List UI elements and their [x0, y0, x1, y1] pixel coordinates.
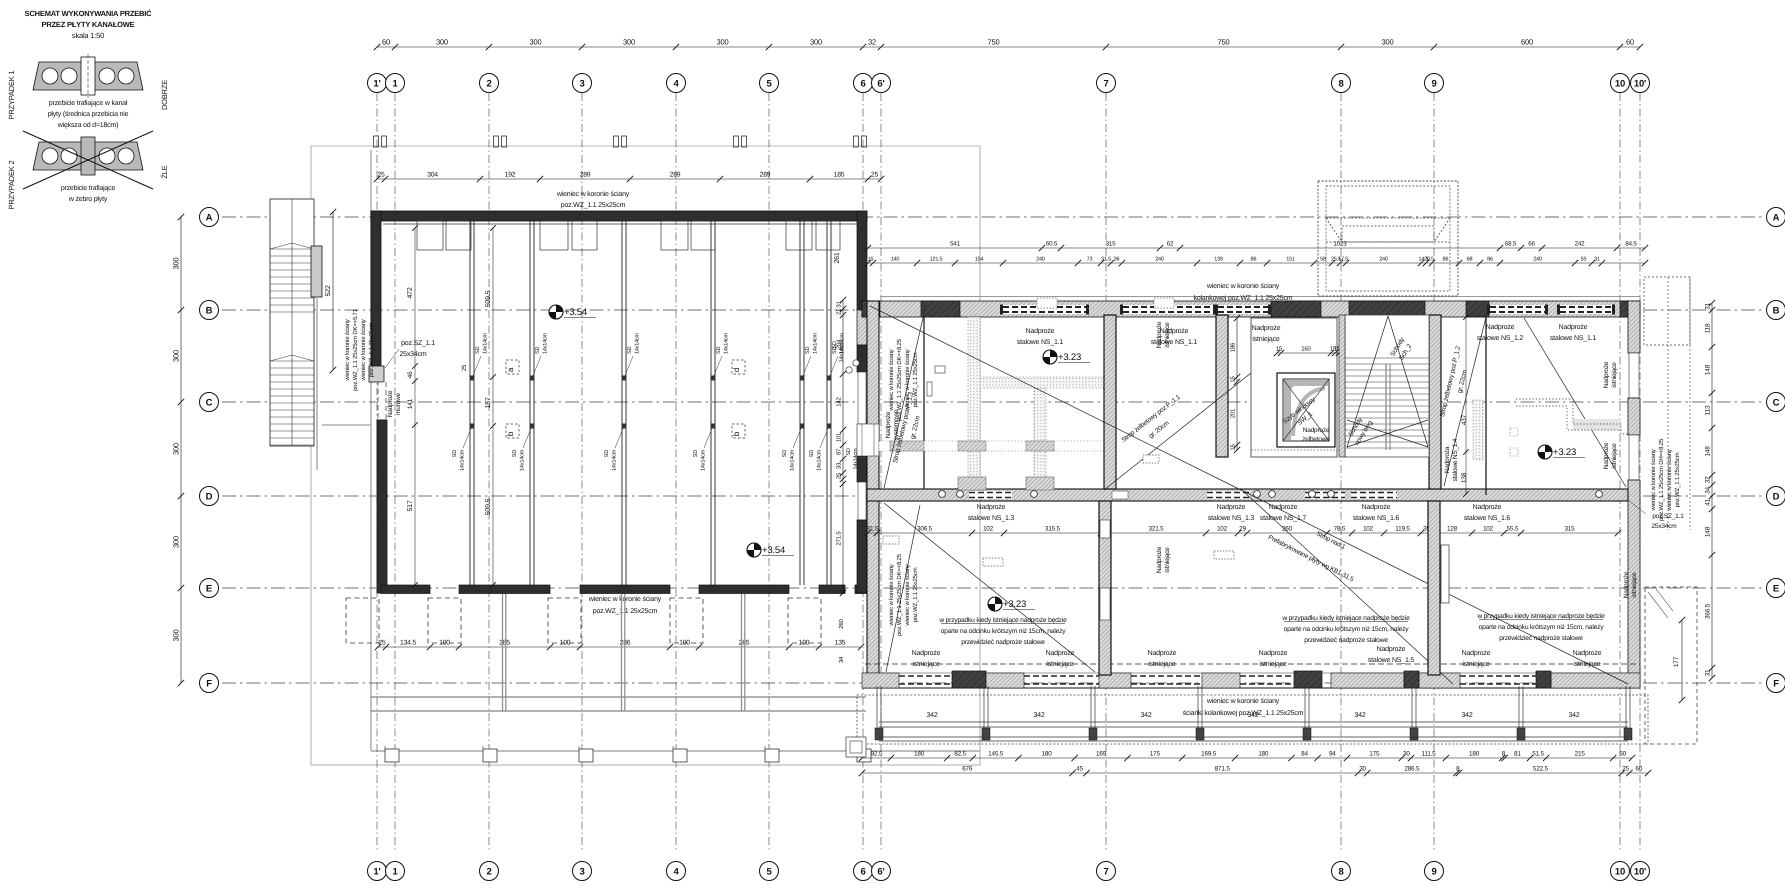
svg-text:+3.54: +3.54 — [762, 545, 785, 556]
svg-text:istniejące: istniejące — [1611, 443, 1618, 469]
svg-text:Nadproże: Nadproże — [1269, 503, 1298, 511]
svg-text:242: 242 — [1575, 241, 1585, 248]
svg-text:Nadproże: Nadproże — [1252, 324, 1281, 332]
svg-text:92.5: 92.5 — [871, 751, 883, 758]
svg-text:240: 240 — [1036, 257, 1045, 263]
svg-text:68.5: 68.5 — [1505, 241, 1517, 248]
svg-text:wieniec w koronie ściany: wieniec w koronie ściany — [1650, 449, 1657, 511]
svg-text:300: 300 — [530, 38, 542, 47]
svg-text:289: 289 — [670, 172, 681, 179]
svg-text:SD: SD — [604, 450, 610, 457]
svg-text:34: 34 — [1705, 487, 1712, 494]
svg-text:25: 25 — [871, 172, 879, 179]
svg-text:poz.WZ_1.1 25x25cm DH=+8.25: poz.WZ_1.1 25x25cm DH=+8.25 — [1658, 438, 1665, 521]
svg-text:84.5: 84.5 — [1625, 241, 1637, 248]
svg-text:139: 139 — [1214, 257, 1223, 263]
svg-text:PRZEZ PŁYTY KANAŁOWE: PRZEZ PŁYTY KANAŁOWE — [42, 20, 135, 29]
svg-text:157: 157 — [485, 397, 492, 408]
svg-text:SD: SD — [805, 347, 811, 354]
svg-text:7: 7 — [1103, 78, 1108, 89]
svg-text:14x14cm: 14x14cm — [813, 332, 819, 354]
svg-text:600: 600 — [1521, 38, 1533, 47]
svg-text:60.5: 60.5 — [1046, 241, 1058, 248]
svg-text:Nadproże: Nadproże — [1603, 361, 1610, 388]
svg-text:Nadproże: Nadproże — [1462, 649, 1491, 657]
svg-text:3: 3 — [579, 78, 584, 89]
svg-text:6': 6' — [877, 866, 884, 877]
svg-text:wieniec w koronie ściany: wieniec w koronie ściany — [888, 564, 895, 626]
svg-text:istniejące: istniejące — [1259, 660, 1286, 668]
svg-text:14x14cm: 14x14cm — [724, 332, 730, 354]
svg-text:517: 517 — [407, 500, 414, 511]
svg-text:przebicie trafiające: przebicie trafiające — [61, 184, 116, 192]
svg-text:522.5: 522.5 — [1533, 766, 1549, 773]
svg-text:stalowe NS_1.5: stalowe NS_1.5 — [1368, 656, 1415, 664]
svg-text:148: 148 — [1705, 364, 1712, 375]
svg-text:289: 289 — [580, 172, 591, 179]
svg-text:w przypadku kiedy istniejące n: w przypadku kiedy istniejące nadproże bę… — [1281, 615, 1410, 622]
svg-text:14x14cm: 14x14cm — [460, 449, 466, 471]
svg-text:9: 9 — [1431, 866, 1436, 877]
svg-text:180: 180 — [1469, 751, 1480, 758]
svg-text:25: 25 — [461, 364, 468, 371]
svg-text:istniejące: istniejące — [912, 660, 939, 668]
svg-text:111.5: 111.5 — [1421, 751, 1436, 758]
svg-text:300: 300 — [1382, 38, 1394, 47]
svg-text:750: 750 — [988, 38, 1000, 47]
svg-text:F: F — [206, 678, 212, 689]
svg-text:istniejące: istniejące — [1164, 547, 1171, 573]
svg-text:240: 240 — [1379, 257, 1388, 263]
svg-text:Nadproże: Nadproże — [1603, 442, 1610, 469]
svg-text:C: C — [1773, 397, 1780, 408]
svg-text:PRZYPADEK 1: PRZYPADEK 1 — [7, 71, 16, 120]
svg-text:SD: SD — [452, 450, 458, 457]
svg-text:25x34cm: 25x34cm — [399, 351, 426, 358]
svg-text:E: E — [206, 583, 212, 594]
svg-text:Nadproże: Nadproże — [977, 503, 1006, 511]
svg-text:86: 86 — [1251, 257, 1257, 263]
svg-text:ŹLE: ŹLE — [160, 165, 169, 178]
svg-text:stalowe NS_1.1: stalowe NS_1.1 — [1017, 338, 1064, 346]
svg-text:177: 177 — [1673, 656, 1680, 667]
svg-text:istniejące: istniejące — [1573, 660, 1600, 668]
svg-text:poz.WZ_1.1 25x25cm DK=+8.25: poz.WZ_1.1 25x25cm DK=+8.25 — [896, 553, 903, 636]
svg-text:871.5: 871.5 — [1215, 766, 1231, 773]
svg-text:10: 10 — [1615, 78, 1625, 89]
svg-text:SD: SD — [716, 347, 722, 354]
svg-text:240: 240 — [1533, 257, 1542, 263]
svg-text:215: 215 — [1575, 751, 1586, 758]
svg-text:315: 315 — [1564, 526, 1575, 533]
svg-text:żelbetowe: żelbetowe — [1302, 436, 1330, 443]
svg-text:wieniec w koronie ściany: wieniec w koronie ściany — [1206, 697, 1280, 705]
svg-text:6': 6' — [877, 78, 884, 89]
svg-text:100: 100 — [560, 640, 571, 647]
svg-text:30: 30 — [1403, 751, 1410, 758]
svg-text:201: 201 — [1230, 408, 1237, 418]
svg-text:34: 34 — [838, 656, 845, 663]
svg-text:51.5: 51.5 — [1532, 751, 1544, 758]
svg-text:przebicie trafiające w kanał: przebicie trafiające w kanał — [49, 99, 128, 107]
svg-text:100: 100 — [439, 640, 450, 647]
svg-text:Nadproże: Nadproże — [1046, 649, 1075, 657]
svg-text:Nadproże: Nadproże — [387, 390, 394, 417]
svg-text:14x14cm: 14x14cm — [543, 332, 549, 354]
svg-text:78.5: 78.5 — [1334, 526, 1346, 533]
svg-text:14x14cm: 14x14cm — [612, 449, 618, 471]
svg-text:Nadproże: Nadproże — [1486, 323, 1515, 331]
svg-text:SD: SD — [627, 347, 633, 354]
svg-text:240: 240 — [1155, 257, 1164, 263]
svg-text:SD: SD — [832, 341, 838, 348]
svg-text:Nadproża: Nadproża — [1444, 446, 1451, 473]
svg-text:66: 66 — [1528, 241, 1535, 248]
svg-text:60: 60 — [1626, 38, 1634, 47]
svg-text:A: A — [1773, 212, 1780, 223]
svg-text:oparte na odcinku krótszym niż: oparte na odcinku krótszym niż 15cm, nal… — [1284, 626, 1410, 633]
svg-text:poz.WZ_1.1 25x25cm: poz.WZ_1.1 25x25cm — [561, 202, 626, 209]
svg-text:45: 45 — [1076, 766, 1083, 773]
svg-text:261: 261 — [834, 252, 841, 263]
svg-text:B: B — [1773, 305, 1780, 316]
svg-text:SD: SD — [782, 450, 788, 457]
svg-text:306.5: 306.5 — [917, 526, 933, 533]
svg-text:stalowe NS_1.6: stalowe NS_1.6 — [1353, 514, 1400, 522]
svg-text:Nadproże: Nadproże — [1148, 649, 1177, 657]
svg-text:522: 522 — [325, 285, 332, 296]
svg-text:180: 180 — [1258, 751, 1269, 758]
svg-text:stalowe NS_1.7: stalowe NS_1.7 — [1260, 514, 1307, 522]
svg-text:E: E — [1773, 583, 1779, 594]
svg-text:Nadproże: Nadproże — [1573, 649, 1602, 657]
svg-text:260: 260 — [1282, 526, 1293, 533]
svg-text:Nadproże: Nadproże — [1303, 427, 1330, 434]
svg-text:300: 300 — [172, 536, 181, 548]
svg-text:31.5: 31.5 — [1101, 257, 1111, 263]
svg-text:SD: SD — [535, 347, 541, 354]
svg-text:342: 342 — [1140, 712, 1151, 719]
svg-text:541: 541 — [950, 241, 960, 248]
svg-text:20.5: 20.5 — [1424, 257, 1434, 263]
svg-text:148: 148 — [1705, 446, 1712, 457]
svg-text:315.5: 315.5 — [1045, 526, 1061, 533]
svg-text:A: A — [206, 212, 213, 223]
svg-text:B: B — [206, 305, 213, 316]
svg-text:poz.WZ_1.1 25x25cm DK=+8.25: poz.WZ_1.1 25x25cm DK=+8.25 — [896, 338, 903, 421]
svg-text:180: 180 — [1042, 751, 1053, 758]
svg-text:Nadproże: Nadproże — [1559, 323, 1588, 331]
svg-text:istniejące: istniejące — [1252, 335, 1279, 343]
svg-text:138: 138 — [1461, 472, 1468, 483]
svg-text:Nadproże: Nadproże — [1259, 649, 1288, 657]
svg-text:31: 31 — [1705, 303, 1712, 310]
svg-text:321.5: 321.5 — [1149, 526, 1165, 533]
svg-text:21: 21 — [836, 308, 843, 315]
svg-text:31: 31 — [836, 301, 843, 308]
svg-text:+3.23: +3.23 — [1553, 447, 1576, 458]
svg-text:84: 84 — [1301, 751, 1308, 758]
svg-text:C: C — [206, 397, 213, 408]
svg-text:304: 304 — [427, 172, 438, 179]
svg-text:Nadproże: Nadproże — [1026, 327, 1055, 335]
svg-text:przewidzieć nadproże stałowe: przewidzieć nadproże stałowe — [961, 639, 1045, 646]
svg-text:342: 342 — [1033, 712, 1044, 719]
svg-text:101: 101 — [836, 432, 843, 442]
svg-text:25x34cm: 25x34cm — [1652, 523, 1677, 530]
svg-text:113: 113 — [1705, 405, 1712, 415]
svg-text:15: 15 — [868, 257, 874, 263]
svg-text:58: 58 — [1320, 257, 1326, 263]
svg-text:192: 192 — [505, 172, 516, 179]
svg-text:Nadproże: Nadproże — [885, 411, 892, 438]
svg-text:9: 9 — [1431, 78, 1436, 89]
svg-text:135: 135 — [835, 640, 846, 647]
svg-text:Nadproże: Nadproże — [1473, 503, 1502, 511]
svg-text:14x14cm: 14x14cm — [839, 341, 845, 363]
svg-text:118: 118 — [1705, 323, 1712, 333]
svg-text:14x14cm: 14x14cm — [701, 449, 707, 471]
svg-text:Nadproże: Nadproże — [1217, 503, 1246, 511]
svg-text:86: 86 — [1487, 257, 1493, 263]
svg-text:41: 41 — [1705, 499, 1712, 506]
svg-text:w żebro płyty: w żebro płyty — [68, 195, 108, 203]
svg-text:315: 315 — [1106, 241, 1116, 248]
svg-text:55: 55 — [1581, 257, 1587, 263]
svg-text:wieniec w koronie ściany: wieniec w koronie ściany — [344, 319, 351, 381]
svg-text:stalowe NS_1.6: stalowe NS_1.6 — [1464, 514, 1511, 522]
svg-text:300: 300 — [623, 38, 635, 47]
svg-text:Nadproże: Nadproże — [1156, 546, 1163, 573]
svg-text:342: 342 — [1461, 712, 1472, 719]
svg-text:25: 25 — [836, 472, 843, 479]
svg-text:87: 87 — [836, 448, 843, 455]
svg-text:750: 750 — [1218, 38, 1230, 47]
svg-text:342: 342 — [926, 712, 937, 719]
svg-text:29: 29 — [1239, 526, 1246, 533]
svg-text:płyty (średnica przebicia nie: płyty (średnica przebicia nie — [48, 110, 129, 118]
svg-text:128: 128 — [1447, 526, 1458, 533]
svg-text:55.5: 55.5 — [1507, 526, 1519, 533]
svg-text:36: 36 — [1114, 257, 1120, 263]
svg-text:102: 102 — [983, 526, 994, 533]
svg-text:istniejące: istniejące — [1164, 322, 1171, 348]
svg-text:istniejące: istniejące — [1046, 660, 1073, 668]
svg-text:14x14cm: 14x14cm — [817, 449, 823, 471]
svg-text:stalowe NS_1.3: stalowe NS_1.3 — [1208, 514, 1255, 522]
svg-text:134.5: 134.5 — [400, 640, 416, 647]
svg-text:94: 94 — [1329, 751, 1336, 758]
svg-text:60: 60 — [382, 38, 390, 47]
svg-text:stalowe NS_1.1: stalowe NS_1.1 — [1550, 334, 1597, 342]
svg-text:285: 285 — [499, 640, 510, 647]
svg-text:1': 1' — [373, 866, 380, 877]
svg-text:186: 186 — [1230, 342, 1237, 352]
svg-text:stalowe NS_1.4: stalowe NS_1.4 — [1452, 438, 1459, 481]
svg-text:60: 60 — [1635, 766, 1642, 773]
svg-text:25: 25 — [1622, 766, 1629, 773]
svg-text:poz.SZ_1.1: poz.SZ_1.1 — [401, 340, 435, 347]
svg-text:509.5: 509.5 — [485, 290, 492, 307]
svg-text:300: 300 — [172, 258, 181, 270]
svg-text:murowe: murowe — [395, 392, 402, 415]
svg-text:31.5: 31.5 — [867, 526, 879, 533]
svg-text:1023: 1023 — [1334, 241, 1348, 248]
svg-text:289: 289 — [760, 172, 771, 179]
svg-text:PRZYPADEK 2: PRZYPADEK 2 — [7, 161, 16, 210]
svg-text:stalowe NS_1.2: stalowe NS_1.2 — [1477, 334, 1524, 342]
svg-text:Nadproże: Nadproże — [912, 649, 941, 657]
svg-text:6: 6 — [860, 866, 865, 877]
svg-text:271.5: 271.5 — [836, 531, 843, 546]
svg-text:154: 154 — [975, 257, 984, 263]
svg-text:300: 300 — [172, 630, 181, 642]
svg-text:15: 15 — [1230, 376, 1237, 383]
svg-text:169.5: 169.5 — [1201, 751, 1217, 758]
svg-text:25: 25 — [377, 172, 385, 179]
svg-text:102: 102 — [1217, 526, 1228, 533]
svg-text:300: 300 — [436, 38, 448, 47]
svg-text:68: 68 — [1467, 257, 1473, 263]
svg-text:121.5: 121.5 — [930, 257, 943, 263]
svg-text:151: 151 — [1286, 257, 1295, 263]
svg-text:86: 86 — [1443, 257, 1449, 263]
svg-text:6: 6 — [860, 78, 865, 89]
svg-text:100: 100 — [679, 640, 690, 647]
svg-text:180: 180 — [914, 751, 925, 758]
svg-text:148: 148 — [1705, 526, 1712, 537]
svg-text:przewidzieć nadproże stałowe: przewidzieć nadproże stałowe — [1499, 635, 1583, 642]
svg-text:przewidzieć nadproże stałowe: przewidzieć nadproże stałowe — [1304, 637, 1388, 644]
svg-text:D: D — [1773, 491, 1780, 502]
svg-text:342: 342 — [1568, 712, 1579, 719]
svg-text:1': 1' — [373, 78, 380, 89]
svg-text:30: 30 — [1359, 766, 1366, 773]
svg-text:472: 472 — [407, 287, 414, 298]
svg-text:46: 46 — [407, 371, 414, 378]
svg-text:Nadproże: Nadproże — [1623, 571, 1630, 598]
svg-text:Nadproże: Nadproże — [1156, 321, 1163, 348]
svg-text:poz.WZ_1.1 25x25cm DK=+5.71: poz.WZ_1.1 25x25cm DK=+5.71 — [352, 308, 359, 391]
svg-text:14x14cm: 14x14cm — [790, 449, 796, 471]
svg-text:oparte na odcinku krótszym niż: oparte na odcinku krótszym niż 15cm, nal… — [941, 628, 1067, 635]
svg-text:SCHEMAT WYKONYWANIA PRZEBIĆ: SCHEMAT WYKONYWANIA PRZEBIĆ — [25, 9, 152, 18]
svg-text:+3.23: +3.23 — [1058, 352, 1081, 363]
svg-text:+3.23: +3.23 — [1003, 599, 1026, 610]
svg-text:SD: SD — [512, 450, 518, 457]
svg-text:286.5: 286.5 — [1404, 766, 1420, 773]
svg-text:140: 140 — [891, 257, 900, 263]
svg-text:102: 102 — [1483, 526, 1494, 533]
svg-text:15: 15 — [1230, 444, 1237, 451]
svg-text:17.5: 17.5 — [1338, 257, 1348, 263]
svg-text:32: 32 — [868, 38, 876, 47]
svg-text:10': 10' — [1634, 78, 1646, 89]
svg-text:676: 676 — [962, 766, 973, 773]
svg-text:14x14cm: 14x14cm — [635, 332, 641, 354]
svg-text:60: 60 — [1619, 751, 1626, 758]
svg-text:437: 437 — [1461, 414, 1468, 425]
svg-text:142: 142 — [836, 396, 843, 406]
svg-text:istniejące: istniejące — [1631, 572, 1638, 598]
svg-text:+3.54: +3.54 — [564, 307, 587, 318]
svg-text:2: 2 — [486, 866, 491, 877]
svg-text:w przypadku kiedy istniejące n: w przypadku kiedy istniejące nadproże bę… — [938, 617, 1067, 624]
svg-text:wieniec w koronie ściany: wieniec w koronie ściany — [360, 319, 367, 381]
svg-text:w przypadku kiedy istniejące n: w przypadku kiedy istniejące nadproże bę… — [1476, 613, 1605, 620]
svg-text:Nadproże: Nadproże — [1377, 645, 1406, 653]
svg-text:141: 141 — [407, 398, 414, 409]
svg-text:ścianki kolankowej poz.WZ_1.1: ścianki kolankowej poz.WZ_1.1 25x25cm — [1183, 709, 1304, 717]
svg-text:F: F — [1773, 678, 1779, 689]
svg-text:175: 175 — [1150, 751, 1161, 758]
svg-text:SD: SD — [475, 347, 481, 354]
svg-text:wieniec w koronie ściany: wieniec w koronie ściany — [1666, 449, 1673, 511]
svg-text:25: 25 — [378, 640, 386, 647]
svg-text:342: 342 — [1354, 712, 1365, 719]
svg-text:100: 100 — [799, 640, 810, 647]
svg-text:175: 175 — [1369, 751, 1380, 758]
svg-text:102: 102 — [1363, 526, 1374, 533]
svg-text:3: 3 — [579, 866, 584, 877]
svg-text:300: 300 — [810, 38, 822, 47]
svg-text:stalowe NS_1.3: stalowe NS_1.3 — [968, 514, 1015, 522]
svg-text:wieniec w koronie ściany: wieniec w koronie ściany — [904, 349, 911, 411]
svg-text:10: 10 — [1615, 866, 1625, 877]
svg-text:d: d — [732, 368, 741, 372]
svg-text:10': 10' — [1634, 866, 1646, 877]
svg-text:SD: SD — [693, 450, 699, 457]
svg-text:większa od d=18cm): większa od d=18cm) — [57, 121, 118, 129]
svg-text:poz.WZ_1.1 25x25cm: poz.WZ_1.1 25x25cm — [912, 352, 919, 407]
svg-text:2: 2 — [486, 78, 491, 89]
svg-text:oparte na odcinku krótszym niż: oparte na odcinku krótszym niż 15cm, nal… — [1479, 624, 1605, 631]
svg-text:160: 160 — [1301, 346, 1311, 353]
svg-text:istniejące: istniejące — [1462, 660, 1489, 668]
svg-text:73: 73 — [1087, 257, 1093, 263]
svg-text:SD: SD — [846, 448, 852, 455]
svg-text:wieniec w koronie ściany: wieniec w koronie ściany — [1206, 282, 1280, 290]
svg-text:DOBRZE: DOBRZE — [160, 80, 169, 110]
svg-text:509.5: 509.5 — [485, 498, 492, 515]
svg-text:poz.WZ_1.1 25x25cm: poz.WZ_1.1 25x25cm — [912, 567, 919, 622]
svg-text:169: 169 — [1096, 751, 1107, 758]
svg-text:260: 260 — [838, 618, 845, 628]
svg-text:15: 15 — [1276, 346, 1283, 353]
svg-text:185: 185 — [834, 172, 845, 179]
svg-text:SD: SD — [809, 450, 815, 457]
svg-text:14x14cm: 14x14cm — [483, 332, 489, 354]
svg-text:81: 81 — [1514, 751, 1521, 758]
svg-text:8: 8 — [1338, 78, 1343, 89]
svg-text:istniejące: istniejące — [1148, 660, 1175, 668]
svg-text:poz.WZ_1.1 25x25cm: poz.WZ_1.1 25x25cm — [368, 322, 375, 377]
svg-text:300: 300 — [172, 350, 181, 362]
svg-text:wieniec w koronie ściany: wieniec w koronie ściany — [904, 564, 911, 626]
svg-text:skala 1:50: skala 1:50 — [72, 31, 104, 40]
svg-text:7: 7 — [1103, 866, 1108, 877]
svg-text:kolankowej poz.WZ_1.1 25x25cm: kolankowej poz.WZ_1.1 25x25cm — [1194, 294, 1293, 302]
svg-text:31: 31 — [1594, 257, 1600, 263]
svg-text:33: 33 — [836, 462, 843, 469]
svg-text:wieniec w koronie ściany: wieniec w koronie ściany — [556, 190, 630, 198]
svg-text:Nadproże: Nadproże — [1362, 503, 1391, 511]
svg-text:119.5: 119.5 — [1395, 526, 1410, 533]
svg-text:D: D — [206, 491, 213, 502]
svg-text:wieniec w koronie ściany: wieniec w koronie ściany — [888, 349, 895, 411]
svg-text:32: 32 — [1705, 476, 1712, 483]
svg-text:62: 62 — [1167, 241, 1174, 248]
